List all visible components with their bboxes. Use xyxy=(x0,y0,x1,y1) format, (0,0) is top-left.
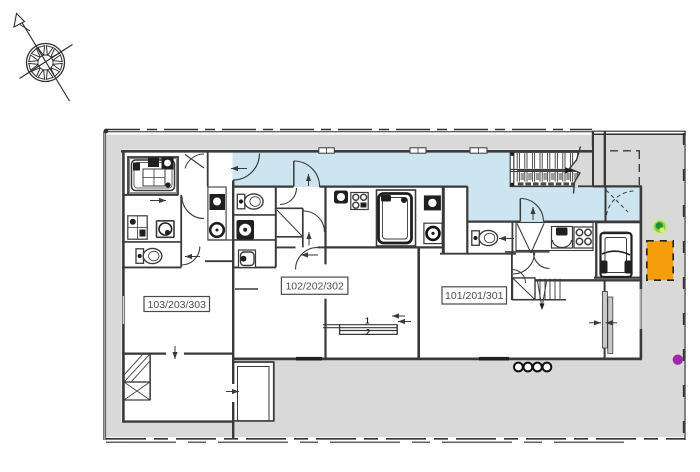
svg-text:101/201/301: 101/201/301 xyxy=(445,290,504,302)
svg-text:2: 2 xyxy=(366,328,371,337)
svg-text:102/202/302: 102/202/302 xyxy=(285,280,344,292)
svg-text:103/203/303: 103/203/303 xyxy=(148,299,207,311)
svg-text:1: 1 xyxy=(365,317,370,326)
